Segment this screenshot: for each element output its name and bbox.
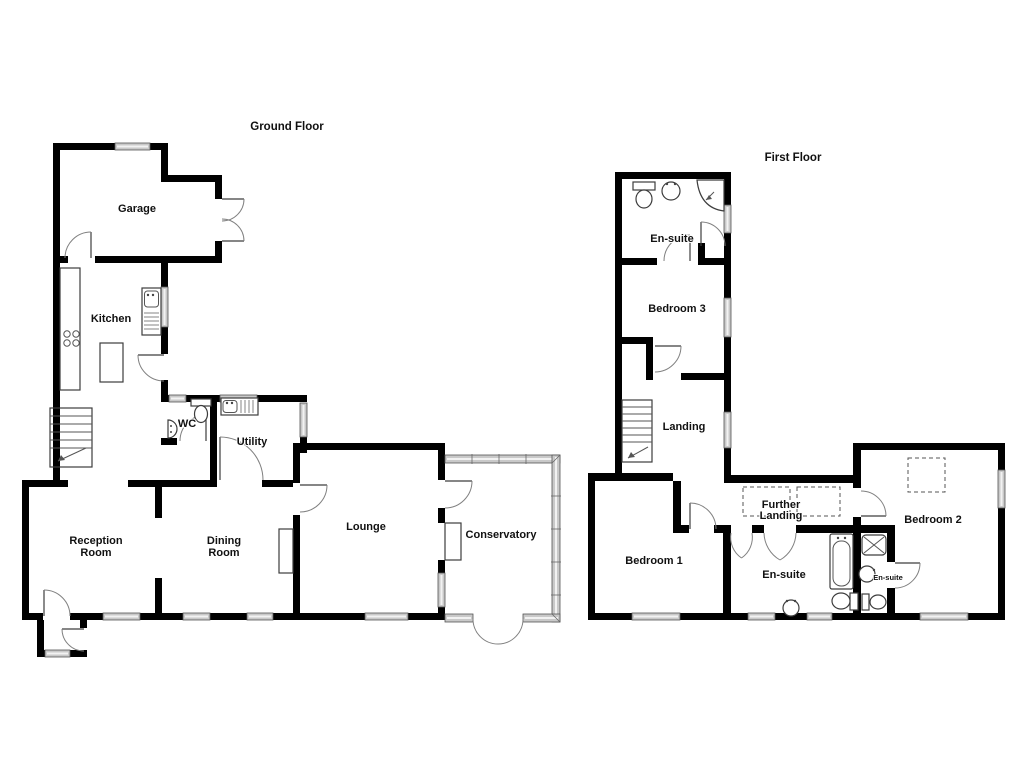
- wc-basin-icon: [168, 420, 177, 438]
- garage-kitchen-door: [65, 232, 91, 258]
- ensuite-top-toilet-icon: [633, 182, 655, 208]
- dining-lounge-door: [300, 485, 327, 512]
- window-bedroom2-front: [920, 613, 968, 620]
- first-floor-fixtures: [622, 180, 945, 616]
- conservatory-double-doors: [473, 619, 523, 644]
- kitchen-side-door: [138, 355, 164, 381]
- window-lounge-front: [365, 613, 408, 620]
- window-reception: [103, 613, 140, 620]
- window-garage: [115, 143, 150, 150]
- ensuite2-label: En-suite: [873, 573, 903, 582]
- window-lounge-side: [438, 573, 445, 607]
- floorplan-page: Ground Floor Garage Kitchen WC Utility R…: [0, 0, 1024, 768]
- utility-label: Utility: [237, 436, 268, 448]
- window-ensuite-main-2: [807, 613, 832, 620]
- ensuite-top-shower-icon: [697, 180, 724, 211]
- conservatory-label: Conservatory: [466, 529, 538, 541]
- bedroom1-door: [690, 503, 716, 529]
- window-dining: [247, 613, 273, 620]
- ensuite-main-label: En-suite: [762, 569, 805, 581]
- window-utility-side: [300, 403, 307, 437]
- ensuite-main-basin-icon: [783, 600, 799, 616]
- further-landing-hatch-box-2: [797, 487, 840, 516]
- first-floor-plan: First Floor En-suite Bedroom 3 Landing F…: [588, 152, 1005, 620]
- window-ensuite-main-1: [748, 613, 775, 620]
- porch-entrance-door: [62, 629, 84, 651]
- lounge-label: Lounge: [346, 521, 386, 533]
- first-floor-title: First Floor: [765, 152, 822, 164]
- ground-floor-title: Ground Floor: [250, 121, 324, 133]
- window-kitchen: [161, 287, 168, 327]
- window-bedroom1: [632, 613, 680, 620]
- kitchen-island-icon: [100, 343, 123, 382]
- ground-floor-plan: Ground Floor Garage Kitchen WC Utility R…: [22, 121, 561, 657]
- landing-label: Landing: [663, 421, 706, 433]
- window-ensuite-top: [724, 205, 731, 233]
- ensuite2-shower-icon: [862, 535, 886, 555]
- utility-sink-icon: [221, 398, 258, 415]
- window-bedroom3: [724, 298, 731, 337]
- bedroom1-label: Bedroom 1: [625, 555, 682, 567]
- ground-floor-doors: [44, 199, 523, 651]
- reception-room-label-line1: Reception: [69, 535, 122, 547]
- ensuite-top-basin-icon: [662, 182, 680, 200]
- garage-double-doors: [222, 199, 244, 241]
- bedroom2-door: [861, 491, 886, 516]
- bedroom2-hatch-box: [908, 458, 945, 492]
- window-front-1: [183, 613, 210, 620]
- window-bedroom2-side: [998, 470, 1005, 508]
- dining-chimney-breast: [279, 529, 293, 573]
- kitchen-label: Kitchen: [91, 313, 132, 325]
- bedroom3-door: [655, 346, 681, 372]
- wc-label: WC: [178, 418, 196, 430]
- ensuite2-toilet-icon: [862, 594, 886, 610]
- window-porch: [45, 650, 70, 657]
- dining-room-label-line1: Dining: [207, 535, 241, 547]
- ensuite-top-door-right: [701, 222, 725, 246]
- bedroom3-label: Bedroom 3: [648, 303, 705, 315]
- garage-label: Garage: [118, 203, 156, 215]
- ensuite-main-bath-icon: [830, 534, 853, 589]
- kitchen-sink-icon: [142, 288, 161, 335]
- reception-porch-door: [44, 590, 70, 616]
- first-floor-doors: [655, 222, 920, 588]
- kitchen-counter-icon: [60, 268, 80, 390]
- ensuite-top-label: En-suite: [650, 233, 693, 245]
- window-wc: [169, 395, 186, 402]
- lounge-conservatory-door: [445, 481, 472, 508]
- first-floor-windows: [632, 205, 1005, 620]
- landing-stairs: [622, 400, 652, 462]
- bedroom2-label: Bedroom 2: [904, 514, 961, 526]
- lounge-chimney-breast: [445, 523, 461, 560]
- ensuite-main-double-doors: [731, 533, 796, 560]
- reception-room-label-line2: Room: [80, 547, 111, 559]
- ensuite-main-toilet-icon: [832, 593, 858, 610]
- floorplan-drawing: Ground Floor Garage Kitchen WC Utility R…: [0, 0, 1024, 768]
- further-landing-label-line2: Landing: [760, 510, 803, 522]
- window-landing: [724, 412, 731, 448]
- dining-room-label-line2: Room: [208, 547, 239, 559]
